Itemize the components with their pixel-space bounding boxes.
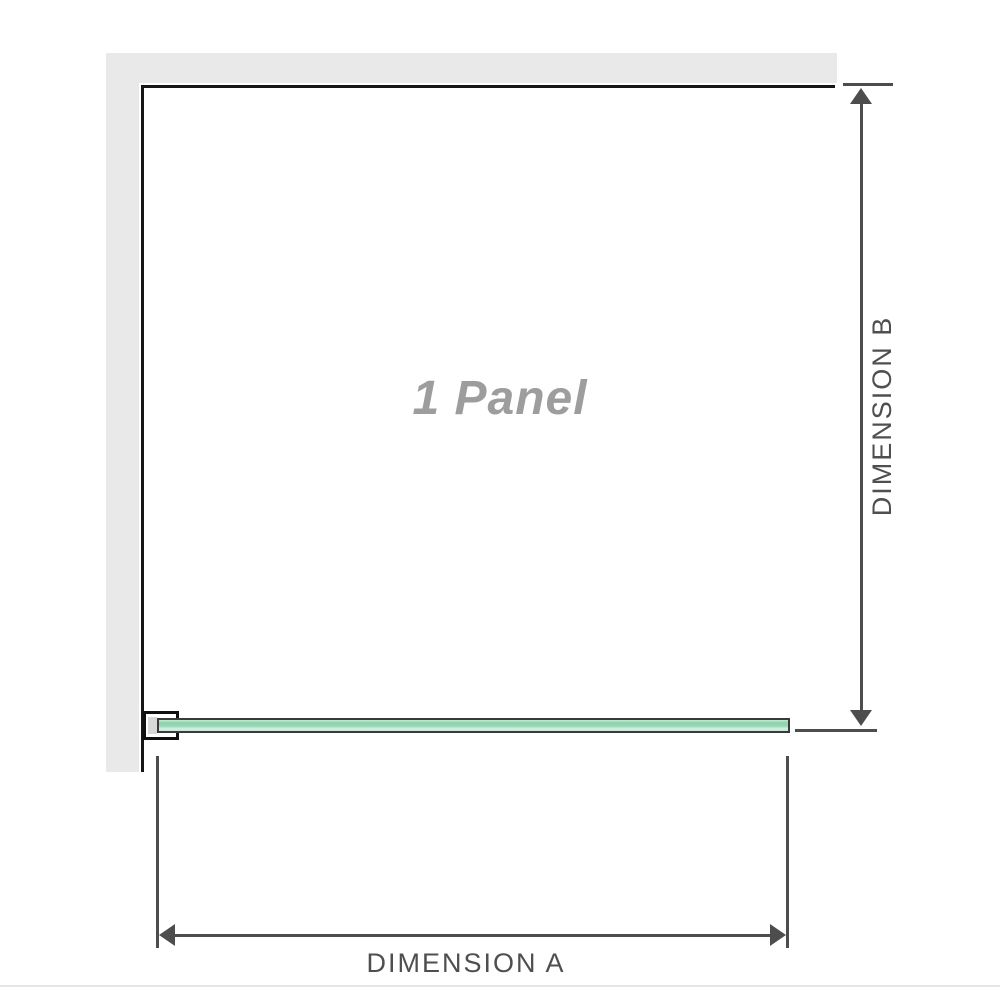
bracket-shim xyxy=(148,717,157,734)
wall-side xyxy=(106,53,139,772)
diagram-canvas: 1 Panel DIMENSION B DIMENSION A xyxy=(0,0,1000,1000)
panel-outline-top xyxy=(141,85,835,88)
dimension-a-line xyxy=(166,934,780,937)
dimension-a-label: DIMENSION A xyxy=(316,946,616,980)
glass-panel-bar xyxy=(157,718,790,733)
dimension-b-tick-top xyxy=(843,83,893,86)
panel-count-label: 1 Panel xyxy=(350,369,650,429)
left-arrowhead-icon xyxy=(159,924,175,946)
dimension-b-label: DIMENSION B xyxy=(867,306,897,526)
dimension-a-extension-right xyxy=(786,756,789,948)
wall-top xyxy=(106,53,837,83)
page-divider xyxy=(0,985,1000,987)
dimension-a-extension-left xyxy=(156,756,159,948)
panel-outline-left xyxy=(141,85,144,772)
down-arrowhead-icon xyxy=(850,710,872,726)
right-arrowhead-icon xyxy=(770,924,786,946)
up-arrowhead-icon xyxy=(850,88,872,104)
dimension-b-line xyxy=(860,96,863,718)
dimension-b-tick-bottom xyxy=(795,729,877,732)
